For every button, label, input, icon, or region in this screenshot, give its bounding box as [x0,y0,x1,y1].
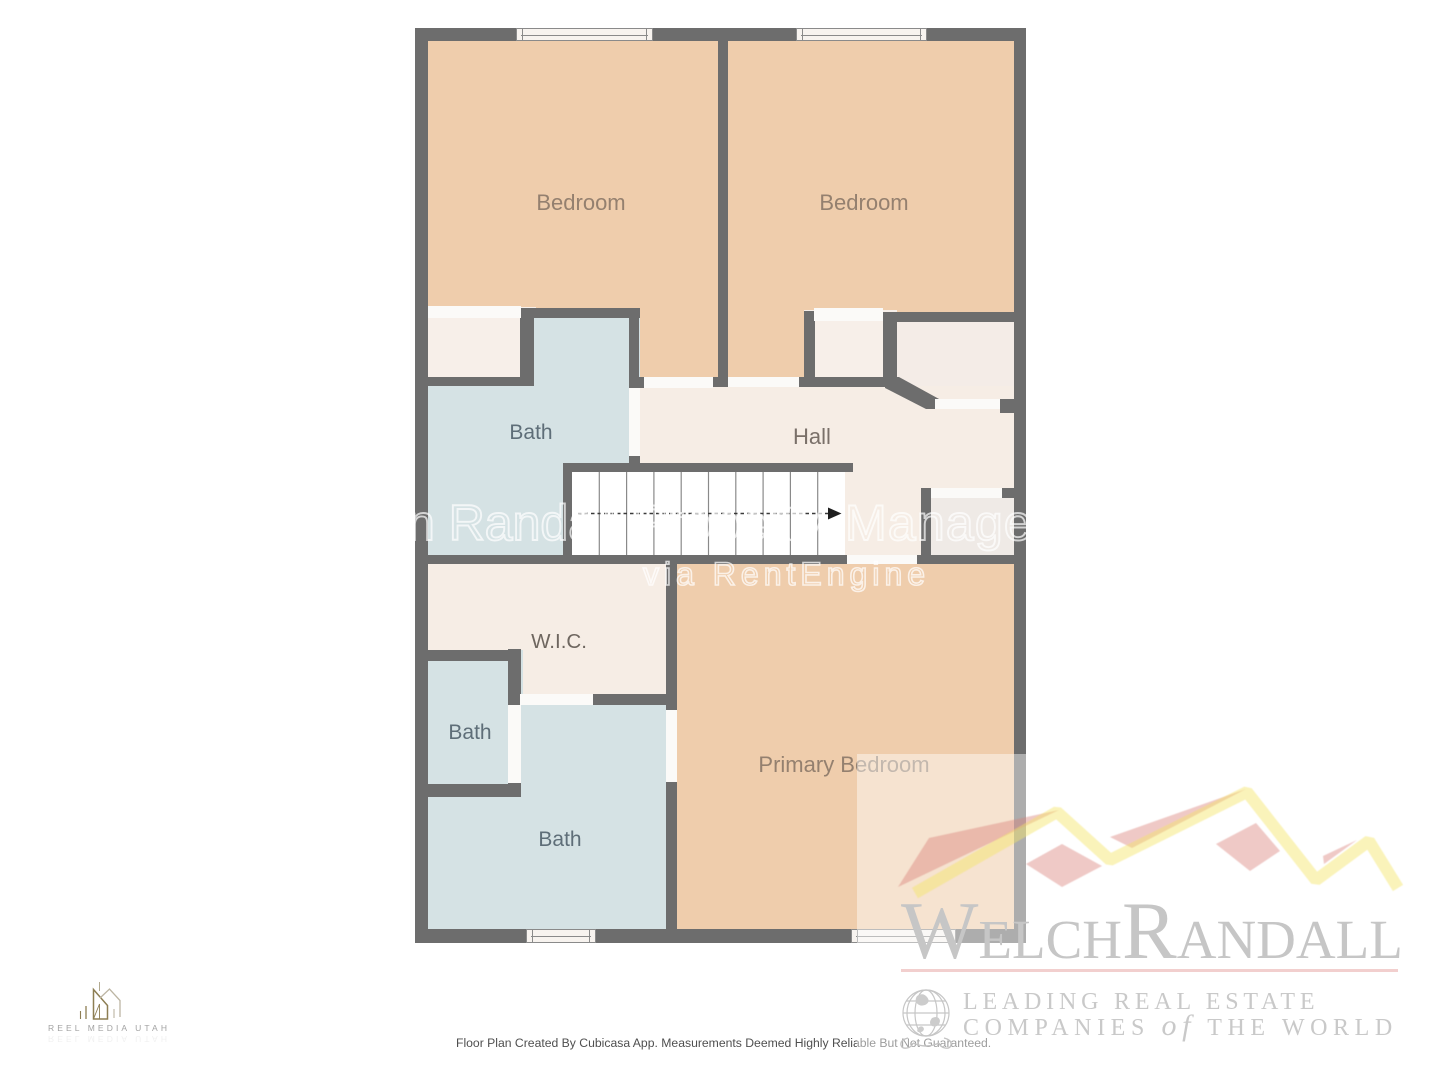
svg-text:LEADING REAL ESTATE: LEADING REAL ESTATE [963,989,1319,1015]
svg-text:WELCHRANDALL: WELCHRANDALL [901,885,1403,976]
